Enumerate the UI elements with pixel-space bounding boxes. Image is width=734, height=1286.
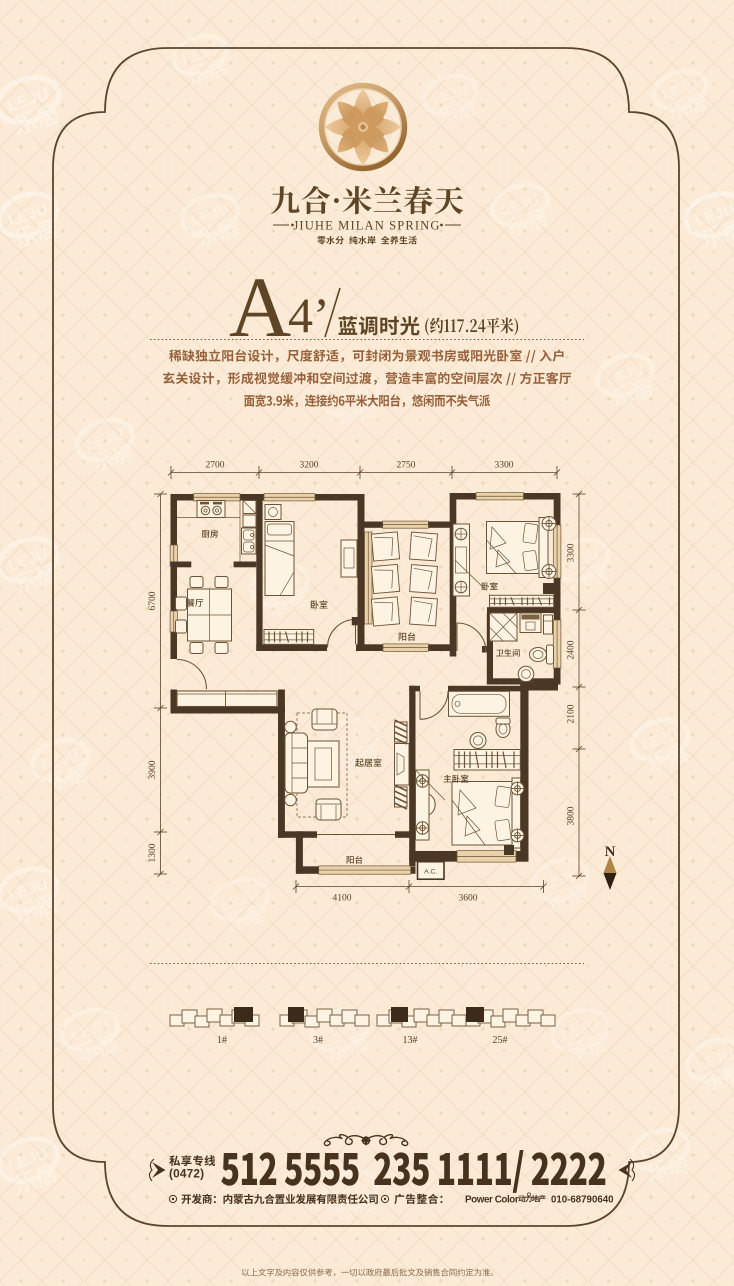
svg-text:(0472): (0472) bbox=[169, 1167, 204, 1181]
svg-text:3300: 3300 bbox=[567, 543, 577, 562]
svg-text:A.C.: A.C. bbox=[424, 869, 437, 876]
svg-text:3900: 3900 bbox=[148, 760, 158, 779]
svg-text:6700: 6700 bbox=[148, 591, 158, 610]
svg-text:Power Color: Power Color bbox=[465, 1195, 519, 1206]
svg-text:3#: 3# bbox=[313, 1035, 323, 1046]
svg-text:010-68790640: 010-68790640 bbox=[551, 1195, 614, 1206]
svg-text:3800: 3800 bbox=[567, 806, 577, 825]
svg-text:3200: 3200 bbox=[300, 461, 319, 471]
svg-text:JIUHE MILAN SPRING: JIUHE MILAN SPRING bbox=[293, 219, 440, 233]
svg-text:1#: 1# bbox=[217, 1035, 227, 1046]
svg-text:A: A bbox=[229, 259, 291, 355]
svg-text:4’: 4’ bbox=[288, 287, 330, 343]
svg-text:3300: 3300 bbox=[495, 461, 514, 471]
svg-text:2100: 2100 bbox=[567, 704, 577, 723]
svg-text:2700: 2700 bbox=[206, 461, 225, 471]
svg-text:3600: 3600 bbox=[459, 894, 478, 904]
svg-text:2750: 2750 bbox=[397, 461, 416, 471]
svg-text:4100: 4100 bbox=[333, 894, 352, 904]
svg-text:13#: 13# bbox=[403, 1035, 418, 1046]
svg-text:25#: 25# bbox=[493, 1035, 508, 1046]
svg-text:2400: 2400 bbox=[567, 640, 577, 659]
svg-text:1300: 1300 bbox=[148, 843, 158, 862]
